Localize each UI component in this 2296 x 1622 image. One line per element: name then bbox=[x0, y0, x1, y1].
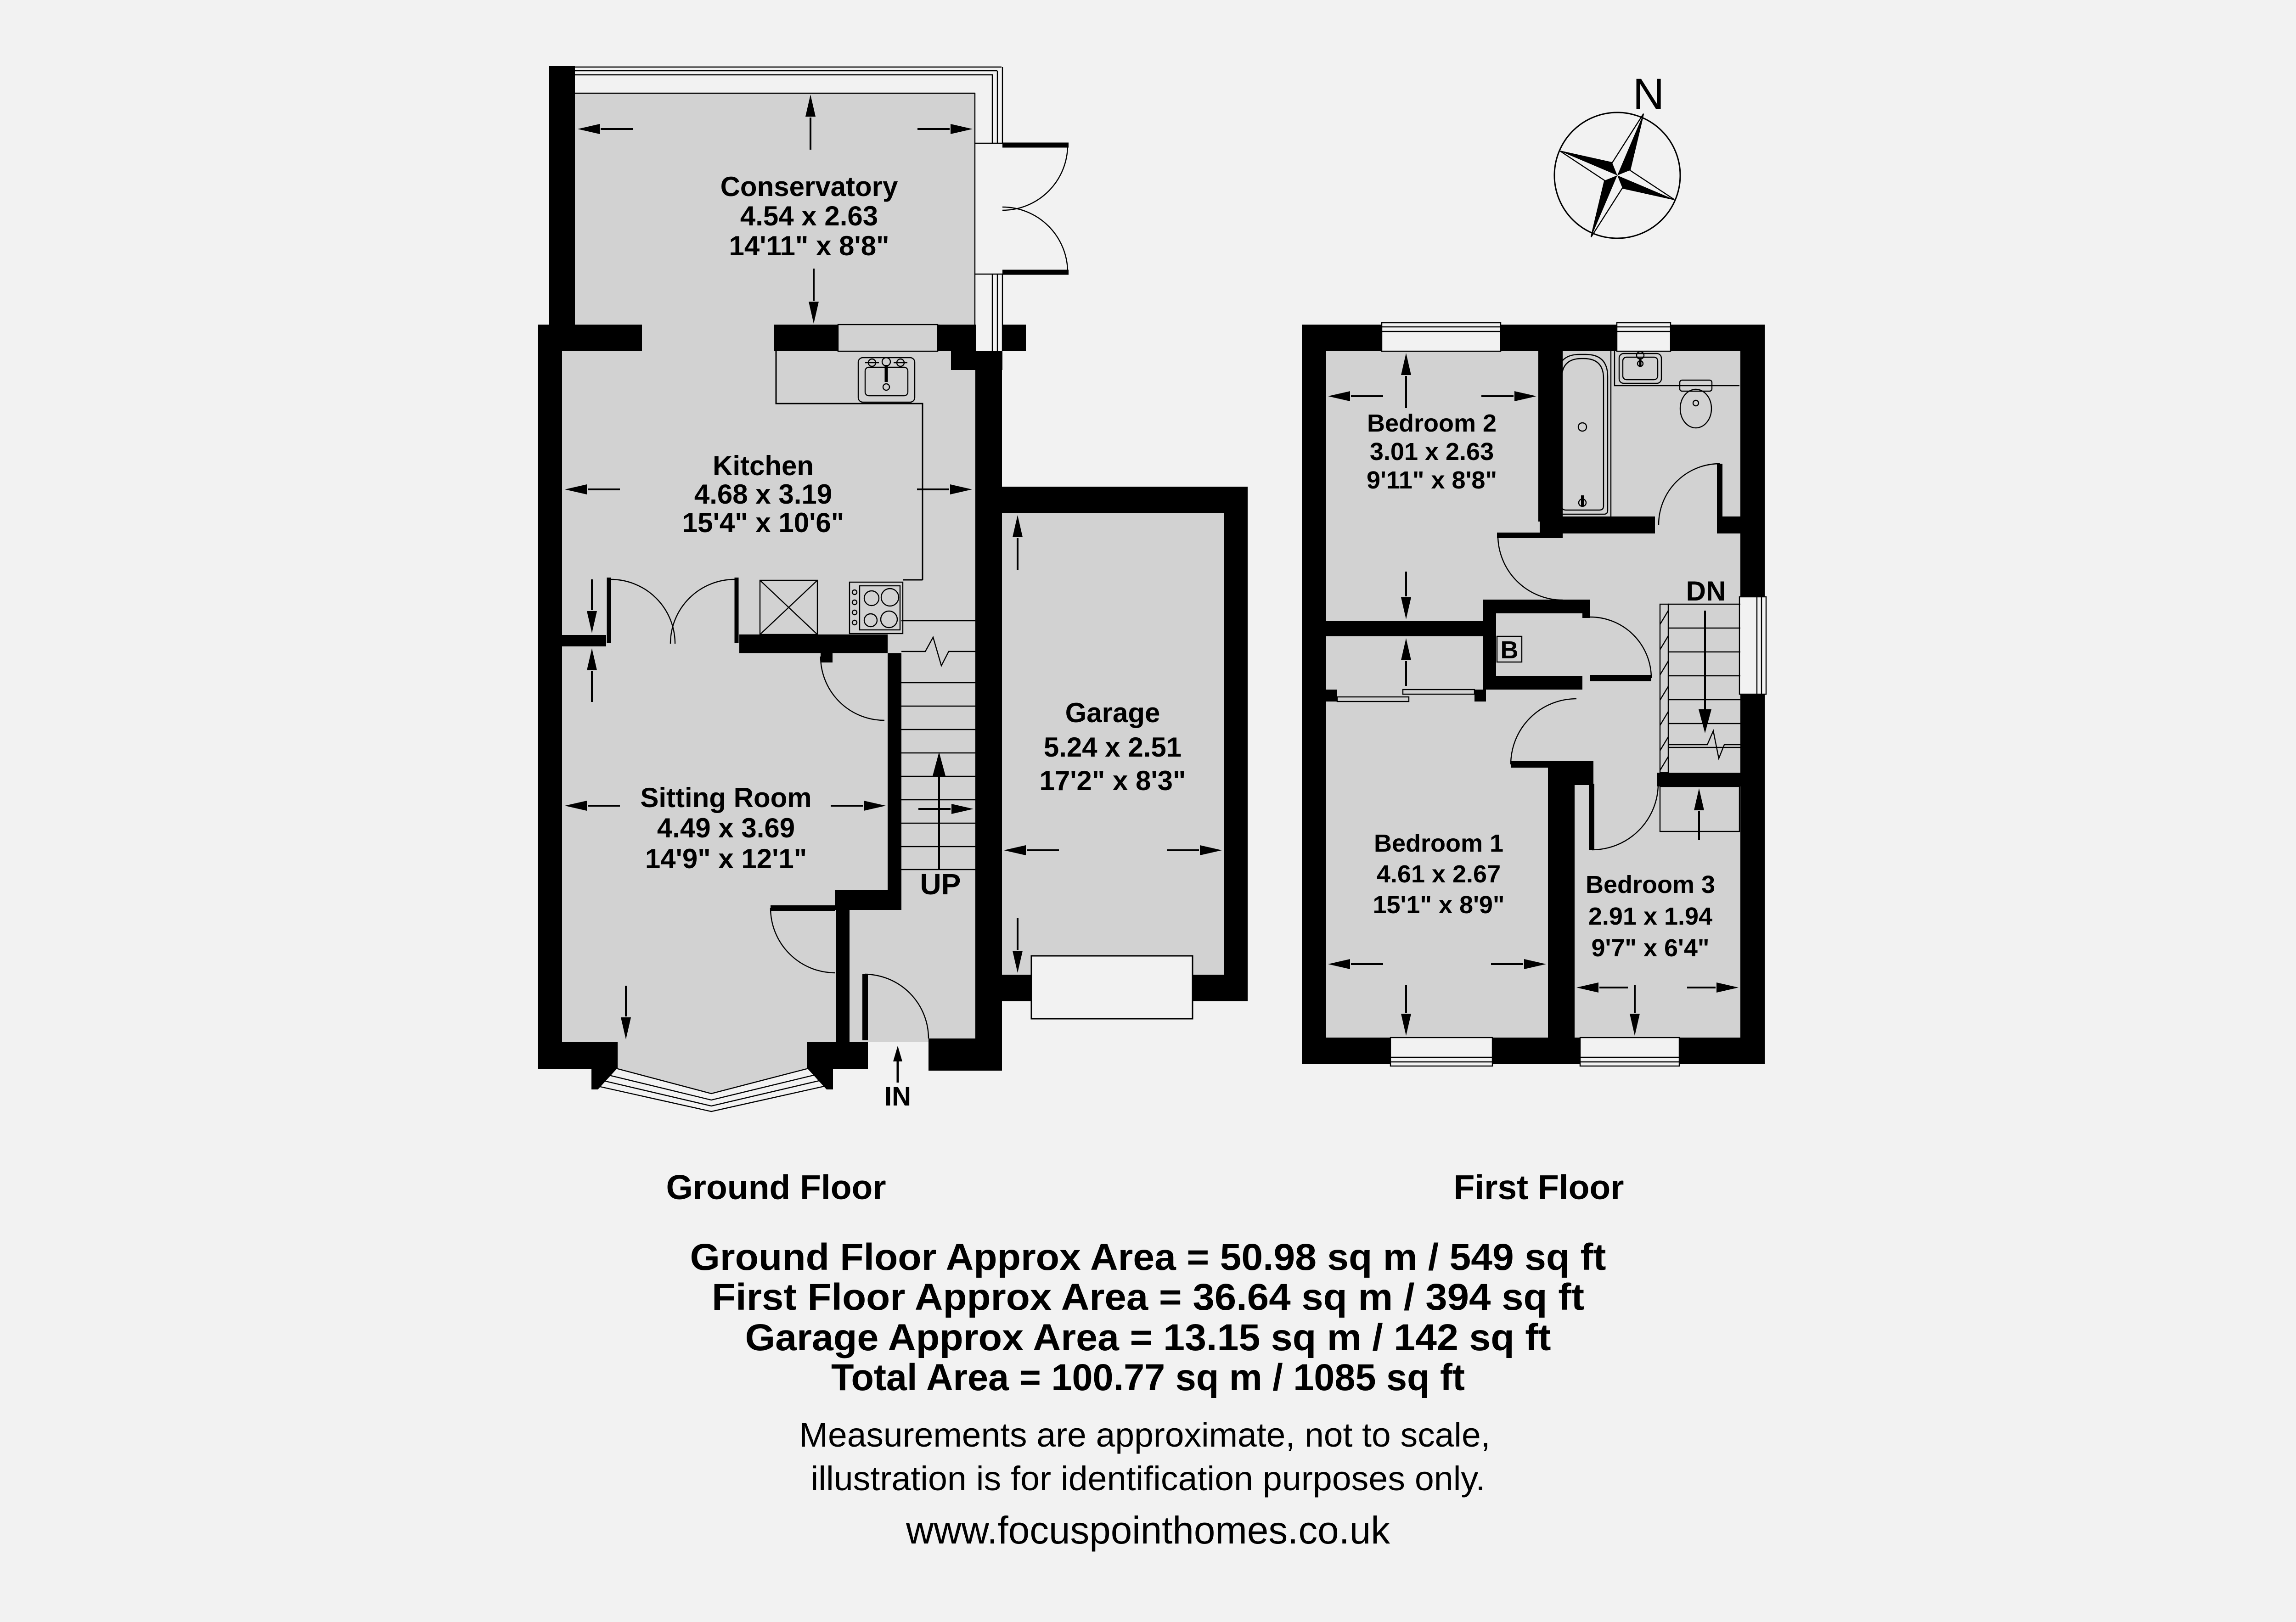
svg-text:14'9" x 12'1": 14'9" x 12'1" bbox=[645, 843, 807, 874]
svg-text:Bedroom 3: Bedroom 3 bbox=[1586, 871, 1715, 898]
svg-text:Garage: Garage bbox=[1065, 697, 1160, 728]
svg-text:17'2" x 8'3": 17'2" x 8'3" bbox=[1040, 765, 1186, 796]
svg-text:Sitting Room: Sitting Room bbox=[640, 782, 811, 813]
svg-text:Bedroom 2: Bedroom 2 bbox=[1367, 410, 1497, 437]
svg-text:2.91 x 1.94: 2.91 x 1.94 bbox=[1588, 903, 1712, 930]
svg-text:Ground Floor: Ground Floor bbox=[666, 1168, 886, 1207]
svg-text:15'4" x 10'6": 15'4" x 10'6" bbox=[682, 507, 844, 538]
svg-text:Total Area = 100.77 sq m / 108: Total Area = 100.77 sq m / 1085 sq ft bbox=[831, 1357, 1465, 1398]
svg-text:4.49 x 3.69: 4.49 x 3.69 bbox=[657, 813, 795, 843]
svg-text:illustration is for identifica: illustration is for identification purpo… bbox=[811, 1459, 1486, 1498]
svg-text:Conservatory: Conservatory bbox=[720, 171, 898, 202]
svg-text:First Floor: First Floor bbox=[1454, 1168, 1624, 1207]
svg-text:Ground Floor Approx Area = 50.: Ground Floor Approx Area = 50.98 sq m / … bbox=[690, 1236, 1606, 1278]
svg-text:UP: UP bbox=[920, 868, 961, 901]
svg-text:IN: IN bbox=[884, 1082, 911, 1111]
svg-text:4.68 x 3.19: 4.68 x 3.19 bbox=[694, 479, 832, 510]
svg-text:4.61 x 2.67: 4.61 x 2.67 bbox=[1377, 860, 1501, 888]
svg-text:First Floor Approx Area = 36.: First Floor Approx Area = 36.64 sq m / 3… bbox=[712, 1276, 1584, 1318]
svg-text:Kitchen: Kitchen bbox=[713, 450, 814, 481]
svg-text:9'11" x 8'8": 9'11" x 8'8" bbox=[1367, 466, 1497, 494]
svg-text:4.54 x 2.63: 4.54 x 2.63 bbox=[740, 201, 878, 231]
svg-text:Garage Approx Area = 13.15 sq: Garage Approx Area = 13.15 sq m / 142 sq… bbox=[745, 1317, 1551, 1358]
svg-text:3.01 x 2.63: 3.01 x 2.63 bbox=[1370, 438, 1494, 466]
svg-text:www.focuspointhomes.co.uk: www.focuspointhomes.co.uk bbox=[906, 1509, 1390, 1552]
svg-text:Bedroom 1: Bedroom 1 bbox=[1374, 830, 1503, 857]
svg-text:9'7" x 6'4": 9'7" x 6'4" bbox=[1591, 934, 1709, 962]
svg-text:14'11" x 8'8": 14'11" x 8'8" bbox=[729, 230, 889, 261]
svg-text:B: B bbox=[1501, 636, 1519, 664]
svg-text:5.24 x 2.51: 5.24 x 2.51 bbox=[1044, 732, 1182, 763]
svg-text:DN: DN bbox=[1686, 576, 1726, 606]
svg-text:15'1" x 8'9": 15'1" x 8'9" bbox=[1373, 891, 1504, 919]
svg-text:N: N bbox=[1633, 70, 1665, 118]
svg-text:Measurements are approximate,: Measurements are approximate, not to sca… bbox=[799, 1416, 1491, 1454]
